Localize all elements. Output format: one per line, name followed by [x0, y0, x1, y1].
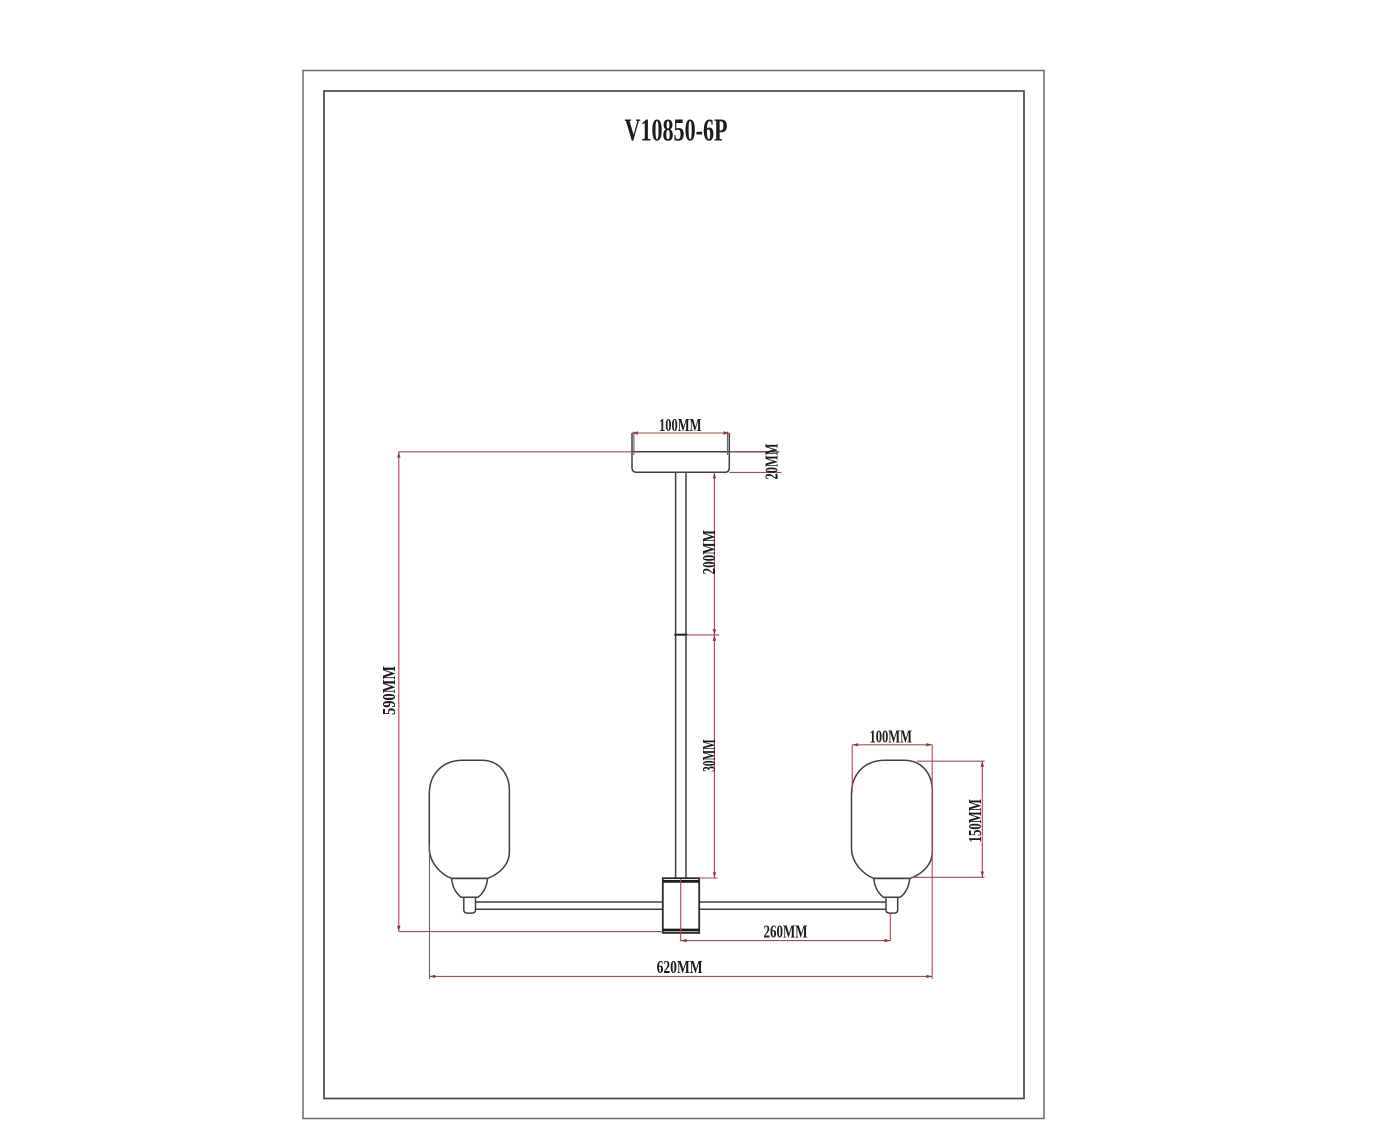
- svg-text:V10850-6P: V10850-6P: [625, 112, 728, 148]
- svg-text:260MM: 260MM: [764, 922, 808, 942]
- svg-text:20MM: 20MM: [762, 443, 782, 479]
- svg-text:590MM: 590MM: [379, 666, 399, 715]
- svg-text:100MM: 100MM: [659, 415, 702, 435]
- svg-text:30MM: 30MM: [699, 739, 719, 772]
- svg-text:200MM: 200MM: [699, 530, 719, 575]
- svg-text:150MM: 150MM: [965, 799, 985, 843]
- svg-text:620MM: 620MM: [657, 957, 703, 977]
- svg-text:100MM: 100MM: [869, 726, 912, 746]
